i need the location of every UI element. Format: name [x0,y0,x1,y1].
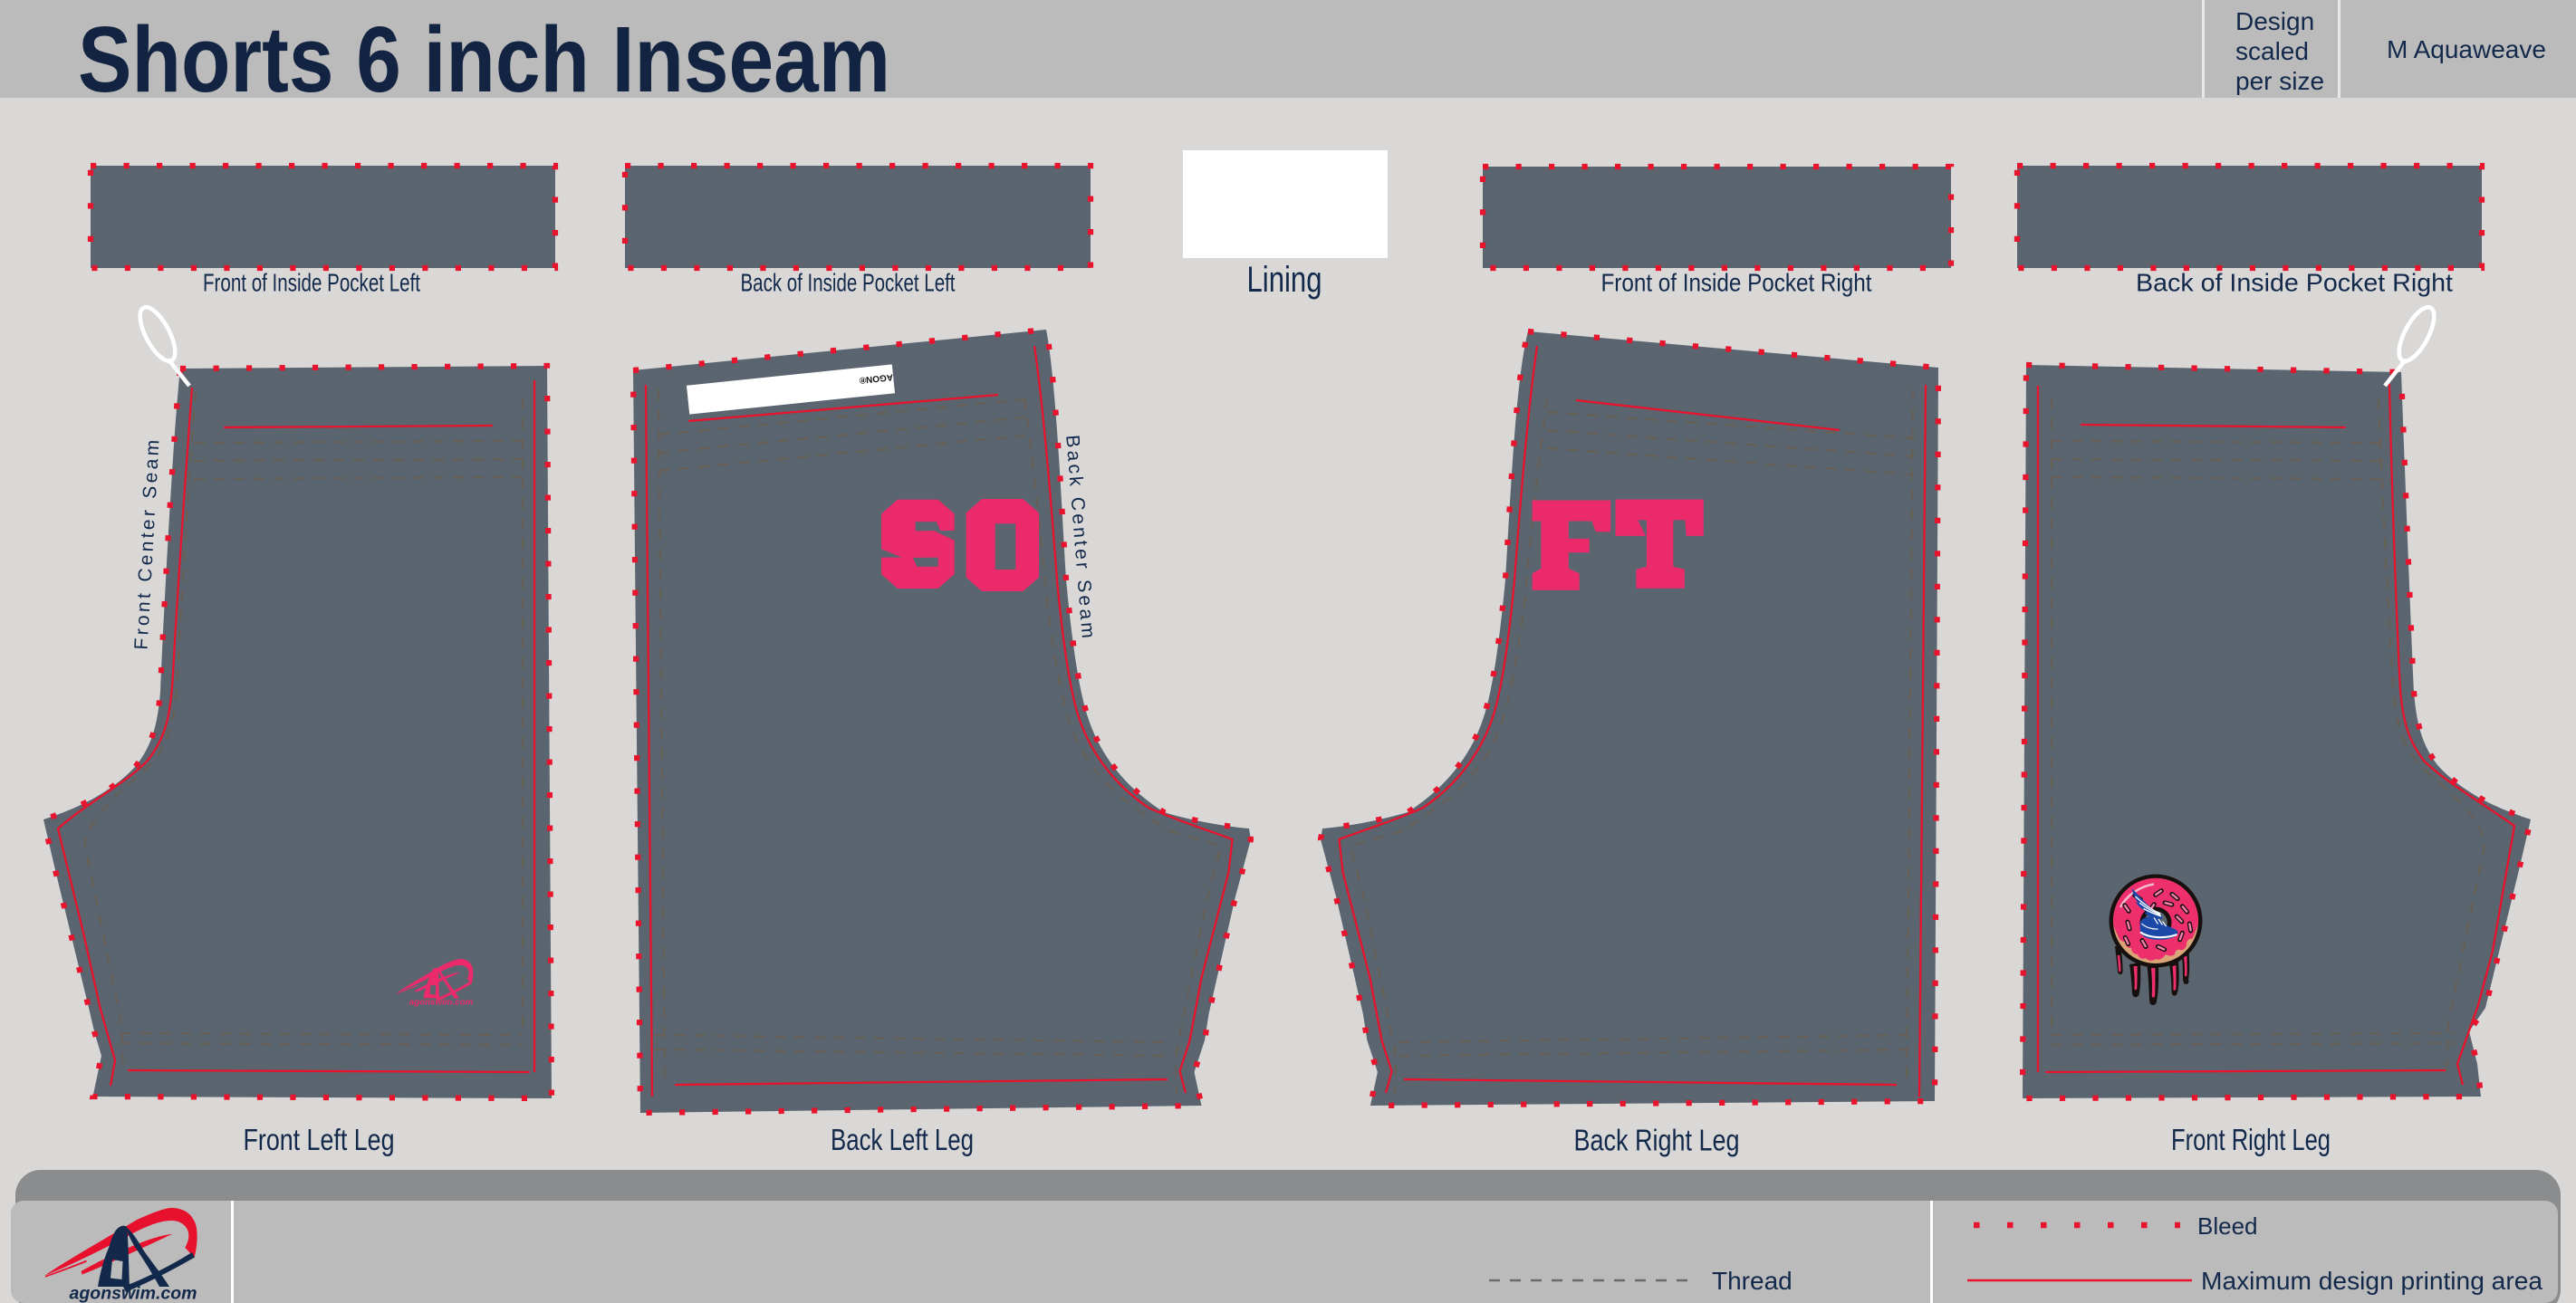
svg-text:Back Left Leg: Back Left Leg [831,1123,974,1156]
svg-text:scaled: scaled [2235,37,2309,65]
svg-text:M Aquaweave: M Aquaweave [2387,35,2546,63]
svg-text:Design: Design [2235,7,2314,35]
svg-text:Front of Inside Pocket Left: Front of Inside Pocket Left [203,269,420,297]
svg-text:Maximum design printing area: Maximum design printing area [2201,1267,2542,1295]
svg-text:Shorts 6 inch Inseam: Shorts 6 inch Inseam [78,7,890,111]
svg-text:per size: per size [2235,67,2324,95]
svg-text:Front of Inside Pocket Right: Front of Inside Pocket Right [1601,269,1872,297]
svg-text:Front Right Leg: Front Right Leg [2171,1123,2331,1156]
svg-text:Back of Inside Pocket Right: Back of Inside Pocket Right [2136,269,2453,297]
svg-text:Front Left Leg: Front Left Leg [244,1123,395,1156]
svg-text:Bleed: Bleed [2197,1212,2258,1240]
svg-text:Lining: Lining [1247,260,1322,300]
svg-text:agonswim.com: agonswim.com [70,1285,197,1303]
svg-text:Thread: Thread [1712,1267,1793,1295]
svg-text:Back of Inside Pocket Left: Back of Inside Pocket Left [741,269,956,297]
svg-text:Back Right Leg: Back Right Leg [1574,1124,1740,1157]
svg-text:agonswim.com: agonswim.com [409,997,474,1007]
